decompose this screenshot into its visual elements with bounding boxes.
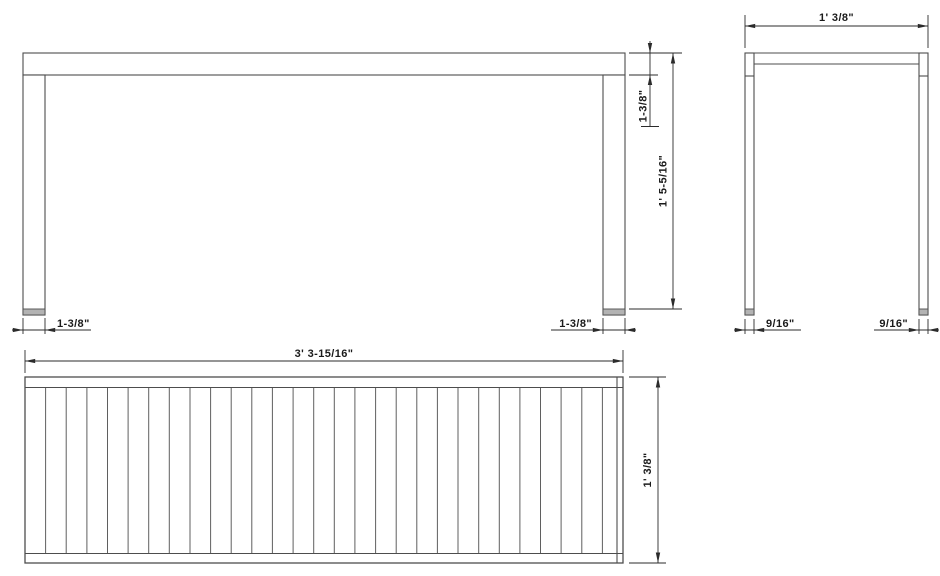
arrowhead: [45, 328, 55, 332]
dim-label-side-right-leg: 9/16": [879, 318, 908, 330]
dim-label-right-leg: 1-3/8": [559, 318, 592, 330]
side-view: 1' 3/8" 9/16" 9/16": [734, 12, 939, 334]
arrowhead: [625, 328, 635, 332]
side-right-foot-glide: [919, 309, 928, 315]
arrowhead: [25, 359, 35, 363]
dim-label-side-width: 1' 3/8": [819, 12, 854, 24]
side-view-geometry: [745, 53, 928, 315]
top-view-geometry: [25, 377, 623, 563]
front-view-geometry: [23, 53, 625, 315]
arrowhead: [928, 328, 938, 332]
arrowhead: [648, 75, 652, 85]
dim-label-left-leg: 1-3/8": [57, 318, 90, 330]
top-outer-frame: [25, 377, 623, 563]
dim-label-top-thickness: 1-3/8": [638, 90, 650, 123]
side-left-leg: [745, 53, 754, 315]
dim-label-side-left-leg: 9/16": [766, 318, 795, 330]
top-view: 3' 3-15/16" 1' 3/8": [25, 348, 666, 563]
side-right-leg: [919, 53, 928, 315]
front-left-leg: [23, 75, 45, 315]
arrowhead: [745, 24, 755, 28]
arrowhead: [918, 24, 928, 28]
dim-label-top-depth: 1' 3/8": [642, 452, 654, 487]
arrowhead: [613, 359, 623, 363]
arrowhead: [735, 328, 745, 332]
arrowhead: [593, 328, 603, 332]
arrowhead: [656, 377, 660, 388]
front-right-foot-glide: [603, 309, 625, 315]
front-top-rail: [23, 53, 625, 75]
dim-label-overall-height: 1' 5-5/16": [658, 155, 670, 207]
bench-drawing: 1-3/8" 1' 5-5/16" 1-3/8" 1-3/8": [0, 0, 940, 576]
front-view-dimensions: 1-3/8" 1' 5-5/16" 1-3/8" 1-3/8": [12, 41, 682, 334]
arrowhead: [13, 328, 23, 332]
arrowhead: [656, 553, 660, 564]
side-view-dimensions: 1' 3/8" 9/16" 9/16": [734, 12, 939, 334]
side-left-foot-glide: [745, 309, 754, 315]
dim-label-top-length: 3' 3-15/16": [295, 348, 354, 360]
arrowhead: [754, 328, 764, 332]
front-view: 1-3/8" 1' 5-5/16" 1-3/8" 1-3/8": [12, 41, 682, 334]
arrowhead: [909, 328, 919, 332]
arrowhead: [671, 299, 675, 310]
arrowhead: [671, 53, 675, 64]
arrowhead: [648, 43, 652, 53]
front-right-leg: [603, 75, 625, 315]
front-left-foot-glide: [23, 309, 45, 315]
technical-drawing-canvas: 1-3/8" 1' 5-5/16" 1-3/8" 1-3/8": [0, 0, 940, 576]
